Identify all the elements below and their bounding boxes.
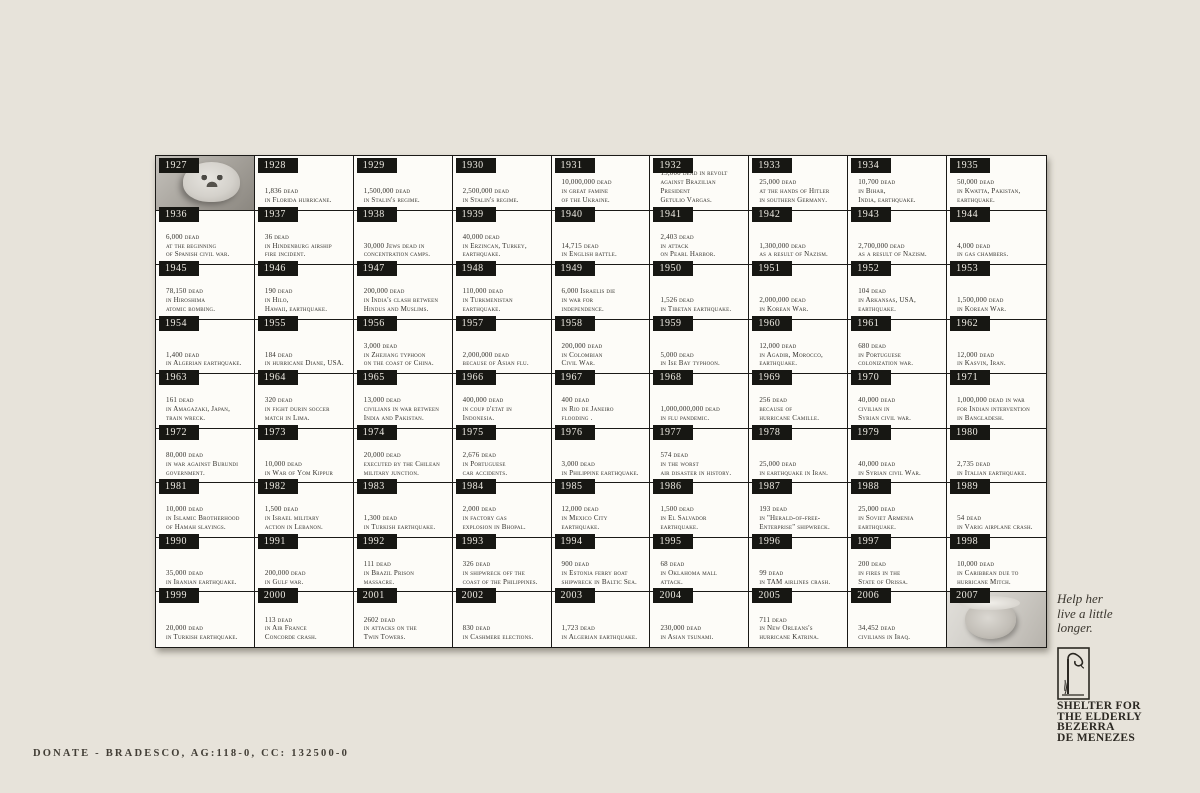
year-cell-1949: 6,000 Israelis diein war forindependence…	[552, 265, 651, 320]
year-label: 1930	[456, 158, 496, 173]
event-text-line: 574 dead	[660, 451, 743, 460]
year-label: 1949	[555, 261, 595, 276]
event-text-line: 1,500,000 dead	[957, 296, 1041, 305]
event-text-line: at the hands of Hitler	[759, 187, 842, 196]
year-cell-1943: 2,700,000 deadas a result of Nazism.1943	[848, 211, 947, 266]
event-text-line: 2602 dead	[364, 616, 447, 625]
event-text-line: 6,000 Israelis die	[562, 287, 645, 296]
year-cell-1995: 68 deadin Oklahoma mallattack.1995	[650, 538, 749, 593]
event-text: 400,000 deadin coup d'etat inIndonesia.	[453, 396, 551, 427]
event-text-line: in shipwreck off the	[463, 569, 546, 578]
event-text-line: in War of Yom Kippur	[265, 469, 348, 478]
year-cell-1967: 400 deadin Rio de Janeiroflooding .1967	[552, 374, 651, 429]
event-text-line: hurricane Camille.	[759, 414, 842, 423]
event-text-line: 1,000,000 dead in war	[957, 396, 1041, 405]
event-text: 320 deadin fight durin soccermatch in Li…	[255, 396, 353, 427]
event-text-line: in Soviet Armenia	[858, 514, 941, 523]
event-text-line: 10,000 dead	[265, 460, 348, 469]
event-text-line: in Portuguese	[858, 351, 941, 360]
event-text-line: in Varig airplane crash.	[957, 523, 1041, 532]
year-label: 1970	[851, 370, 891, 385]
year-label: 1967	[555, 370, 595, 385]
event-text-line: 1,500,000 dead	[364, 187, 447, 196]
event-text-line: in coup d'etat in	[463, 405, 546, 414]
event-text-line: in Agadir, Morocco,	[759, 351, 842, 360]
year-cell-1978: 25,000 deadin earthquake in Iran.1978	[749, 429, 848, 484]
event-text-line: 10,000 dead	[166, 505, 249, 514]
year-label: 1979	[851, 425, 891, 440]
year-cell-1950: 1,526 deadin Tibetan earthquake.1950	[650, 265, 749, 320]
org-name: SHELTER FORTHE ELDERLYBEZERRADE MENEZES	[1057, 701, 1197, 743]
event-text-line: independence.	[562, 305, 645, 314]
year-cell-2004: 230,000 deadin Asian tsunami.2004	[650, 592, 749, 647]
year-label: 1928	[258, 158, 298, 173]
event-text-line: 1,500 dead	[660, 505, 743, 514]
event-text-line: in Gulf war.	[265, 578, 348, 587]
event-text-line: 25,000 dead	[858, 505, 941, 514]
event-text-line: civilians in Iraq.	[858, 633, 941, 642]
year-label: 1973	[258, 425, 298, 440]
year-label: 1942	[752, 207, 792, 222]
event-text-line: in Kwatta, Pakistan,	[957, 187, 1041, 196]
year-label: 1999	[159, 588, 199, 603]
event-text-line: earthquake.	[858, 523, 941, 532]
event-text-line: 193 dead	[759, 505, 842, 514]
event-text-line: attack.	[660, 578, 743, 587]
event-text: 574 deadin the worstair disaster in hist…	[650, 451, 748, 482]
event-text: 2,676 deadin Portuguesecar accidents.	[453, 451, 551, 482]
year-label: 1934	[851, 158, 891, 173]
event-text-line: Concorde crash.	[265, 633, 348, 642]
year-cell-1951: 2,000,000 deadin Korean War.1951	[749, 265, 848, 320]
year-label: 2005	[752, 588, 792, 603]
year-label: 1933	[752, 158, 792, 173]
event-text-line: in the worst	[660, 460, 743, 469]
event-text-line: atomic bombing.	[166, 305, 249, 314]
year-label: 1982	[258, 479, 298, 494]
event-text-line: in Caribbean due to	[957, 569, 1041, 578]
event-text-line: in India's clash between	[364, 296, 447, 305]
year-cell-1933: 25,000 deadat the hands of Hitlerin sout…	[749, 156, 848, 211]
event-text-line: earthquake.	[660, 523, 743, 532]
event-text-line: in Cashmere elections.	[463, 633, 546, 642]
event-text: 400 deadin Rio de Janeiroflooding .	[552, 396, 650, 427]
year-cell-1938: 30,000 Jews dead inconcentration camps.1…	[354, 211, 453, 266]
event-text-line: flooding .	[562, 414, 645, 423]
year-cell-1948: 110,000 deadin Turkmenistanearthquake.19…	[453, 265, 552, 320]
event-text-line: in attacks on the	[364, 624, 447, 633]
year-label: 1966	[456, 370, 496, 385]
event-text-line: fire incident.	[265, 250, 348, 259]
year-label: 1975	[456, 425, 496, 440]
event-text-line: in Korean War.	[957, 305, 1041, 314]
event-text: 25,000 deadin Soviet Armeniaearthquake.	[848, 505, 946, 536]
event-text-line: in great famine	[562, 187, 645, 196]
event-text-line: colonization war.	[858, 359, 941, 368]
event-text: 2602 deadin attacks on theTwin Towers.	[354, 616, 452, 647]
event-text-line: in Portuguese	[463, 460, 546, 469]
event-text-line: air disaster in history.	[660, 469, 743, 478]
year-label: 1976	[555, 425, 595, 440]
event-text-line: 78,150 dead	[166, 287, 249, 296]
donate-line: DONATE - BRADESCO, AG:118-0, CC: 132500-…	[33, 748, 349, 759]
year-cell-1953: 1,500,000 deadin Korean War.1953	[947, 265, 1046, 320]
event-text-line: in earthquake in Iran.	[759, 469, 842, 478]
event-text-line: 54 dead	[957, 514, 1041, 523]
event-text-line: 2,403 dead	[660, 233, 743, 242]
year-cell-1977: 574 deadin the worstair disaster in hist…	[650, 429, 749, 484]
year-label: 1998	[950, 534, 990, 549]
year-label: 1958	[555, 316, 595, 331]
event-text-line: 35,000 dead	[166, 569, 249, 578]
event-text: 78,150 deadin Hiroshimaatomic bombing.	[156, 287, 254, 318]
event-text-line: on the coast of China.	[364, 359, 447, 368]
year-cell-1935: 50,000 deadin Kwatta, Pakistan,earthquak…	[947, 156, 1046, 211]
text-line: live a little	[1057, 607, 1187, 622]
year-cell-1964: 320 deadin fight durin soccermatch in Li…	[255, 374, 354, 429]
event-text: 10,000 deadin Caribbean due tohurricane …	[947, 560, 1046, 591]
year-cell-1971: 1,000,000 dead in warfor Indian interven…	[947, 374, 1046, 429]
event-text-line: 110,000 dead	[463, 287, 546, 296]
year-cell-2006: 34,452 deadcivilians in Iraq.2006	[848, 592, 947, 647]
year-label: 1990	[159, 534, 199, 549]
event-text-line: in Syrian civil War.	[858, 469, 941, 478]
event-text-line: 12,000 dead	[957, 351, 1041, 360]
event-text-line: 200,000 dead	[364, 287, 447, 296]
event-text-line: Civil War.	[562, 359, 645, 368]
year-cell-1974: 20,000 deadexecuted by the Chileanmilita…	[354, 429, 453, 484]
event-text-line: in war for	[562, 296, 645, 305]
event-text-line: for Indian intervention	[957, 405, 1041, 414]
event-text: 830 deadin Cashmere elections.	[453, 624, 551, 647]
event-text-line: earthquake.	[463, 305, 546, 314]
year-cell-1945: 78,150 deadin Hiroshimaatomic bombing.19…	[156, 265, 255, 320]
year-cell-1972: 80,000 deadin war against Burundigovernm…	[156, 429, 255, 484]
event-text-line: 161 dead	[166, 396, 249, 405]
event-text: 6,000 deadat the beginningof Spanish civ…	[156, 233, 254, 264]
year-label: 1961	[851, 316, 891, 331]
event-text-line: 1,300,000 dead	[759, 242, 842, 251]
text-line: BEZERRA	[1057, 722, 1197, 733]
event-text-line: against Brazilian President	[660, 178, 743, 196]
event-text-line: 5,000 dead	[660, 351, 743, 360]
event-text-line: in Algerian earthquake.	[562, 633, 645, 642]
year-cell-1934: 10,700 deadin Bihar,India, earthquake.19…	[848, 156, 947, 211]
event-text: 80,000 deadin war against Burundigovernm…	[156, 451, 254, 482]
year-label: 1995	[653, 534, 693, 549]
year-label: 2001	[357, 588, 397, 603]
event-text-line: 10,000 dead	[957, 560, 1041, 569]
year-label: 1989	[950, 479, 990, 494]
text-line: longer.	[1057, 621, 1187, 636]
event-text: 200,000 deadin ColombianCivil War.	[552, 342, 650, 373]
event-text: 200 deadin fires in theState of Orissa.	[848, 560, 946, 591]
year-cell-1968: 1,000,000,000 deadin flu pandemic.1968	[650, 374, 749, 429]
year-cell-1957: 2,000,000 deadbecause of Asian flu.1957	[453, 320, 552, 375]
event-text-line: in Arkansas, USA,	[858, 296, 941, 305]
year-cell-1962: 12,000 deadin Kasvin, Iran.1962	[947, 320, 1046, 375]
year-cell-1991: 200,000 deadin Gulf war.1991	[255, 538, 354, 593]
year-label: 1991	[258, 534, 298, 549]
year-label: 1983	[357, 479, 397, 494]
year-cell-1929: 1,500,000 deadin Stalin's regime.1929	[354, 156, 453, 211]
year-label: 1935	[950, 158, 990, 173]
event-text-line: 25,000 dead	[759, 460, 842, 469]
year-cell-1970: 40,000 deadcivilian inSyrian civil war.1…	[848, 374, 947, 429]
event-text-line: in TAM airlines crash.	[759, 578, 842, 587]
event-text-line: in Stalin's regime.	[463, 196, 546, 205]
event-text-line: 2,000 dead	[463, 505, 546, 514]
year-label: 1962	[950, 316, 990, 331]
event-text-line: 25,000 dead	[759, 178, 842, 187]
event-text-line: because of Asian flu.	[463, 359, 546, 368]
event-text-line: 1,000,000,000 dead	[660, 405, 743, 414]
event-text: 40,000 deadin Erzincan, Turkey,earthquak…	[453, 233, 551, 264]
event-text-line: in Ise Bay typhoon.	[660, 359, 743, 368]
event-text-line: 256 dead	[759, 396, 842, 405]
year-cell-1927: 1927	[156, 156, 255, 211]
year-label: 1929	[357, 158, 397, 173]
event-text-line: massacre.	[364, 578, 447, 587]
year-label: 1988	[851, 479, 891, 494]
year-label: 1974	[357, 425, 397, 440]
event-text: 161 deadin Amagazaki, Japan,train wreck.	[156, 396, 254, 427]
event-text-line: in Hiroshima	[166, 296, 249, 305]
event-text-line: explosion in Bhopal.	[463, 523, 546, 532]
event-text-line: 10,700 dead	[858, 178, 941, 187]
event-text-line: hurricane Katrina.	[759, 633, 842, 642]
year-cell-2001: 2602 deadin attacks on theTwin Towers.20…	[354, 592, 453, 647]
year-label: 1968	[653, 370, 693, 385]
year-label: 1948	[456, 261, 496, 276]
event-text-line: in Zhejiang typhoon	[364, 351, 447, 360]
event-text: 193 deadin "Herald-of-free-Enterprise" s…	[749, 505, 847, 536]
year-cell-1955: 184 deadin hurricane Diane, USA.1955	[255, 320, 354, 375]
year-label: 1947	[357, 261, 397, 276]
year-label: 2000	[258, 588, 298, 603]
event-text-line: car accidents.	[463, 469, 546, 478]
event-text: 12,000 deadin Agadir, Morocco,earthquake…	[749, 342, 847, 373]
year-label: 1932	[653, 158, 693, 173]
event-text-line: in Amagazaki, Japan,	[166, 405, 249, 414]
event-text-line: civilian in	[858, 405, 941, 414]
event-text-line: in Hilo,	[265, 296, 348, 305]
year-label: 1993	[456, 534, 496, 549]
event-text: 110,000 deadin Turkmenistanearthquake.	[453, 287, 551, 318]
event-text: 1,000,000 dead in warfor Indian interven…	[947, 396, 1046, 427]
event-text-line: 68 dead	[660, 560, 743, 569]
year-label: 1950	[653, 261, 693, 276]
event-text-line: in New Orleans's	[759, 624, 842, 633]
event-text-line: 3,000 dead	[562, 460, 645, 469]
year-label: 1946	[258, 261, 298, 276]
event-text-line: in Turkish earthquake.	[364, 523, 447, 532]
year-label: 1945	[159, 261, 199, 276]
year-cell-1992: 111 deadin Brazil Prisonmassacre.1992	[354, 538, 453, 593]
event-text-line: 2,676 dead	[463, 451, 546, 460]
year-cell-1936: 6,000 deadat the beginningof Spanish civ…	[156, 211, 255, 266]
event-text-line: earthquake.	[759, 359, 842, 368]
event-text-line: 3,000 dead	[364, 342, 447, 351]
year-label: 1951	[752, 261, 792, 276]
event-text-line: in English battle.	[562, 250, 645, 259]
year-label: 1980	[950, 425, 990, 440]
year-cell-1988: 25,000 deadin Soviet Armeniaearthquake.1…	[848, 483, 947, 538]
event-text-line: 104 dead	[858, 287, 941, 296]
event-text-line: in Philippine earthquake.	[562, 469, 645, 478]
year-cell-2007: 2007	[947, 592, 1046, 647]
year-label: 1957	[456, 316, 496, 331]
event-text-line: in Bangladesh.	[957, 414, 1041, 423]
event-text-line: 40,000 dead	[858, 460, 941, 469]
year-cell-1946: 190 deadin Hilo,Hawaii, earthquake.1946	[255, 265, 354, 320]
event-text-line: 900 dead	[562, 560, 645, 569]
year-cell-1928: 1,836 deadin Florida hurricane.1928	[255, 156, 354, 211]
year-cell-1981: 10,000 deadin Islamic Brotherhoodof Hama…	[156, 483, 255, 538]
event-text-line: 2,500,000 dead	[463, 187, 546, 196]
year-cell-1983: 1,300 deadin Turkish earthquake.1983	[354, 483, 453, 538]
event-text-line: in fires in the	[858, 569, 941, 578]
event-text-line: 1,723 dead	[562, 624, 645, 633]
event-text-line: 184 dead	[265, 351, 348, 360]
event-text-line: 400 dead	[562, 396, 645, 405]
year-cell-1982: 1,500 deadin Israel militaryaction in Le…	[255, 483, 354, 538]
event-text-line: in Asian tsunami.	[660, 633, 743, 642]
year-label: 1937	[258, 207, 298, 222]
year-label: 1978	[752, 425, 792, 440]
year-label: 1939	[456, 207, 496, 222]
event-text: 20,000 deadexecuted by the Chileanmilita…	[354, 451, 452, 482]
event-text-line: hurricane Mitch.	[957, 578, 1041, 587]
year-label: 2002	[456, 588, 496, 603]
event-text-line: concentration camps.	[364, 250, 447, 259]
event-text-line: Syrian civil war.	[858, 414, 941, 423]
year-cell-1966: 400,000 deadin coup d'etat inIndonesia.1…	[453, 374, 552, 429]
event-text: 230,000 deadin Asian tsunami.	[650, 624, 748, 647]
year-label: 1953	[950, 261, 990, 276]
year-cell-1975: 2,676 deadin Portuguesecar accidents.197…	[453, 429, 552, 484]
year-label: 1943	[851, 207, 891, 222]
event-text-line: 20,000 dead	[166, 624, 249, 633]
event-text-line: in Turkmenistan	[463, 296, 546, 305]
year-cell-1958: 200,000 deadin ColombianCivil War.1958	[552, 320, 651, 375]
year-label: 1969	[752, 370, 792, 385]
year-label: 1944	[950, 207, 990, 222]
year-cell-1941: 2,403 deadin attackon Pearl Harbor.1941	[650, 211, 749, 266]
event-text: 68 deadin Oklahoma mallattack.	[650, 560, 748, 591]
event-text-line: 400,000 dead	[463, 396, 546, 405]
event-text-line: 36 dead	[265, 233, 348, 242]
event-text-line: earthquake.	[463, 250, 546, 259]
event-text-line: 20,000 dead	[364, 451, 447, 460]
event-text-line: 1,300 dead	[364, 514, 447, 523]
event-text-line: 200 dead	[858, 560, 941, 569]
year-cell-1987: 193 deadin "Herald-of-free-Enterprise" s…	[749, 483, 848, 538]
year-cell-1984: 2,000 deadin factory gasexplosion in Bho…	[453, 483, 552, 538]
event-text-line: State of Orissa.	[858, 578, 941, 587]
year-cell-1994: 900 deadin Estonia ferry boatshipwreck i…	[552, 538, 651, 593]
event-text-line: in Italian earthquake.	[957, 469, 1041, 478]
event-text: 25,000 deadat the hands of Hitlerin sout…	[749, 178, 847, 209]
event-text: 34,452 deadcivilians in Iraq.	[848, 624, 946, 647]
event-text-line: of Spanish civil war.	[166, 250, 249, 259]
tagline: Help herlive a littlelonger.	[1057, 592, 1187, 636]
event-text-line: in Erzincan, Turkey,	[463, 242, 546, 251]
event-text-line: earthquake.	[562, 523, 645, 532]
year-cell-1931: 10,000,000 deadin great famineof the Ukr…	[552, 156, 651, 211]
year-cell-1939: 40,000 deadin Erzincan, Turkey,earthquak…	[453, 211, 552, 266]
event-text-line: in Tibetan earthquake.	[660, 305, 743, 314]
year-cell-1954: 1,400 deadin Algerian earthquake.1954	[156, 320, 255, 375]
year-label: 1994	[555, 534, 595, 549]
year-cell-2000: 113 deadin Air FranceConcorde crash.2000	[255, 592, 354, 647]
event-text-line: 200,000 dead	[265, 569, 348, 578]
event-text-line: train wreck.	[166, 414, 249, 423]
year-cell-2003: 1,723 deadin Algerian earthquake.2003	[552, 592, 651, 647]
event-text-line: 1,526 dead	[660, 296, 743, 305]
year-cell-1944: 4,000 deadin gas chambers.1944	[947, 211, 1046, 266]
year-label: 2006	[851, 588, 891, 603]
year-label: 1981	[159, 479, 199, 494]
event-text: 10,000 deadin Islamic Brotherhoodof Hama…	[156, 505, 254, 536]
year-cell-1940: 14,715 deadin English battle.1940	[552, 211, 651, 266]
event-text: 1,500 deadin El Salvadorearthquake.	[650, 505, 748, 536]
year-cell-1973: 10,000 deadin War of Yom Kippur1973	[255, 429, 354, 484]
event-text-line: action in Lebanon.	[265, 523, 348, 532]
year-cell-1993: 326 deadin shipwreck off thecoast of the…	[453, 538, 552, 593]
event-text-line: in Colombian	[562, 351, 645, 360]
event-text-line: 14,715 dead	[562, 242, 645, 251]
event-text-line: executed by the Chilean	[364, 460, 447, 469]
year-cell-1976: 3,000 deadin Philippine earthquake.1976	[552, 429, 651, 484]
event-text-line: shipwreck in Baltic Sea.	[562, 578, 645, 587]
year-cell-1959: 5,000 deadin Ise Bay typhoon.1959	[650, 320, 749, 375]
event-text-line: in Rio de Janeiro	[562, 405, 645, 414]
event-text-line: 326 dead	[463, 560, 546, 569]
event-text-line: government.	[166, 469, 249, 478]
event-text-line: in El Salvador	[660, 514, 743, 523]
event-text-line: in Estonia ferry boat	[562, 569, 645, 578]
event-text-line: in Iranian earthquake.	[166, 578, 249, 587]
year-label: 1938	[357, 207, 397, 222]
year-label: 1972	[159, 425, 199, 440]
event-text-line: 113 dead	[265, 616, 348, 625]
year-cell-1960: 12,000 deadin Agadir, Morocco,earthquake…	[749, 320, 848, 375]
event-text-line: 1,836 dead	[265, 187, 348, 196]
event-text-line: in Bihar,	[858, 187, 941, 196]
event-text-line: in "Herald-of-free-	[759, 514, 842, 523]
event-text-line: 4,000 dead	[957, 242, 1041, 251]
year-cell-1937: 36 deadin Hindenburg airshipfire inciden…	[255, 211, 354, 266]
event-text-line: in Florida hurricane.	[265, 196, 348, 205]
event-text-line: 680 dead	[858, 342, 941, 351]
event-text: 3,000 deadin Zhejiang typhoonon the coas…	[354, 342, 452, 373]
event-text-line: 10,000,000 dead	[562, 178, 645, 187]
year-label: 1996	[752, 534, 792, 549]
event-text-line: in factory gas	[463, 514, 546, 523]
event-text: 20,000 deadin Turkish earthquake.	[156, 624, 254, 647]
event-text-line: of the Ukraine.	[562, 196, 645, 205]
year-cell-1932: 15,000 dead in revoltagainst Brazilian P…	[650, 156, 749, 211]
event-text-line: 40,000 dead	[858, 396, 941, 405]
year-label: 1936	[159, 207, 199, 222]
year-label: 1992	[357, 534, 397, 549]
year-label: 1987	[752, 479, 792, 494]
year-cell-1986: 1,500 deadin El Salvadorearthquake.1986	[650, 483, 749, 538]
text-line: SHELTER FOR	[1057, 701, 1197, 712]
event-text: 326 deadin shipwreck off thecoast of the…	[453, 560, 551, 591]
year-cell-1979: 40,000 deadin Syrian civil War.1979	[848, 429, 947, 484]
